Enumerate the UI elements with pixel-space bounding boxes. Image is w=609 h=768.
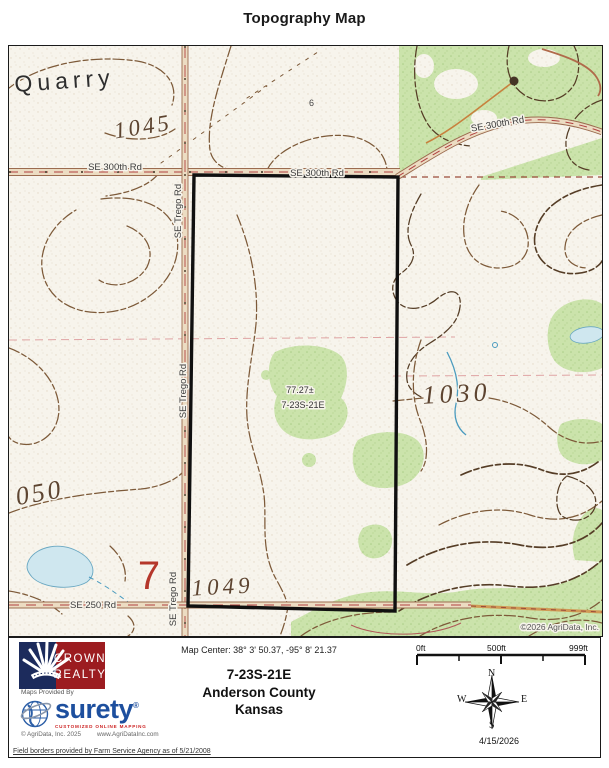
map-paper [9,46,602,636]
scale-label-0ft: 0ft [416,643,425,653]
page-title: Topography Map [0,10,609,27]
label-se-300th-west: SE 300th Rd [88,162,142,173]
crown-realty-logo: CROWN REALTY [19,642,105,694]
label-se-trego-bottom: SE Trego Rd [168,572,179,626]
surety-logo: surety® CUSTOMIZED ONLINE MAPPING [19,696,147,730]
label-se-trego-mid: SE Trego Rd [178,364,189,418]
label-acreage: 77.27± [286,385,314,395]
location-county: Anderson County [159,685,359,700]
scale-bar [416,653,588,666]
crown-logo-word-1: CROWN [54,653,105,665]
map-copyright: ©2026 AgriData, Inc. [520,622,599,632]
label-se-250: SE 250 Rd [70,600,116,611]
field-borders-disclaimer: Field borders provided by Farm Service A… [13,748,211,755]
label-contour-1030: 1030 [422,377,491,410]
topo-map-canvas: Quarry 1045 6 SE 300th Rd SE 300th Rd SE… [9,46,602,636]
surety-wordmark: surety® [55,696,147,723]
surety-tagline: CUSTOMIZED ONLINE MAPPING [55,724,147,729]
map-frame: Quarry 1045 6 SE 300th Rd SE 300th Rd SE… [8,45,603,637]
location-trs: 7-23S-21E [159,667,359,682]
scale-label-500ft: 500ft [487,643,506,653]
crown-logo-word-2: REALTY [54,669,105,681]
map-center-coordinates: Map Center: 38° 3' 50.37, -95° 8' 21.37 [159,645,359,655]
compass-rose-icon [461,671,523,733]
map-date: 4/15/2026 [442,736,556,746]
globe-icon [19,696,53,730]
scale-label-999ft: 999ft [569,643,588,653]
location-state: Kansas [159,702,359,717]
label-contour-1049: 1049 [191,572,254,600]
label-spot-6: 6 [309,98,314,108]
topography-map-page: Topography Map [0,0,609,768]
label-se-trego-top: SE Trego Rd [173,184,184,238]
footer-panel: CROWN REALTY Maps Provided By surety® CU… [8,637,601,758]
surety-registered-mark: ® [133,701,138,710]
label-section-7: 7 [138,554,160,598]
agridata-copyright: © AgriData, Inc. 2025 [21,731,81,738]
label-parcel-section: 7-23S-21E [281,400,324,410]
pond-dot [510,77,519,86]
label-se-300th-mid: SE 300th Rd [290,168,344,179]
road-se-trego [182,46,188,636]
agridata-url: www.AgriDataInc.com [97,731,159,738]
